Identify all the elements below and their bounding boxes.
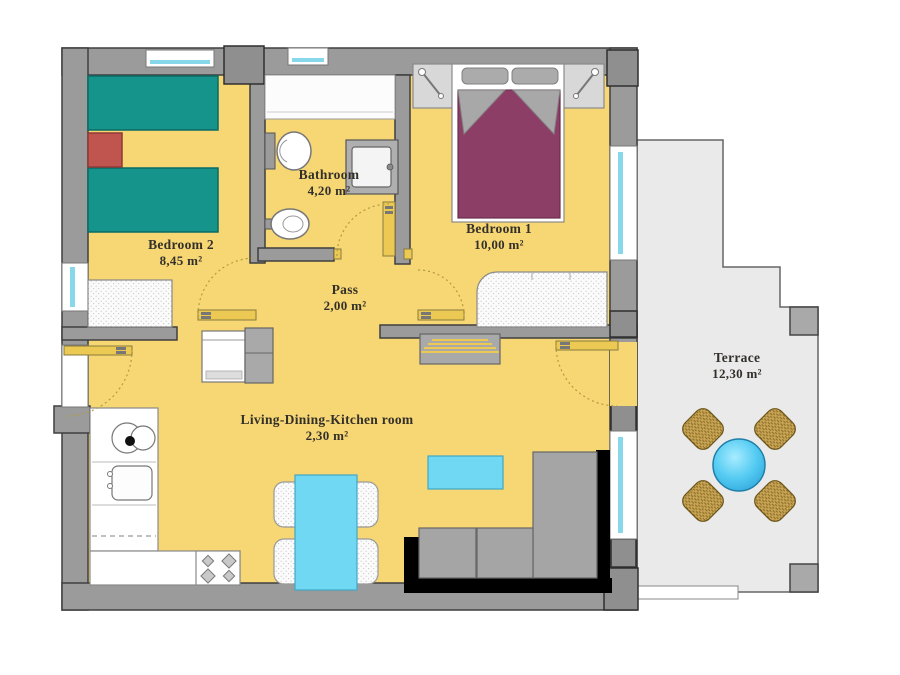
wall-bathroom-bottom: [258, 248, 334, 261]
lamp-shade: [439, 94, 444, 99]
terrace-column: [790, 564, 818, 592]
coffee-table: [428, 456, 503, 489]
room-name: Living-Dining-Kitchen room: [241, 412, 414, 428]
window: [610, 431, 637, 539]
sink-tap: [108, 484, 113, 489]
window-glazing: [618, 152, 623, 254]
door-stop: [404, 249, 412, 259]
red-nightstand: [88, 133, 122, 167]
bathroom-door-leaf: [383, 202, 395, 256]
label-living: Living-Dining-Kitchen room 2,30 m²: [241, 412, 414, 444]
terrace-door-opening: [610, 342, 637, 406]
room-area: 2,30 m²: [241, 428, 414, 444]
dining-table: [295, 475, 357, 590]
column: [607, 50, 638, 86]
washbasin-tap: [387, 164, 393, 170]
room-area: 8,45 m²: [148, 253, 214, 269]
door-handle: [560, 346, 570, 349]
room-area: 12,30 m²: [712, 366, 762, 382]
label-bedroom1: Bedroom 1 10,00 m²: [466, 221, 532, 253]
wardrobe: [88, 280, 172, 327]
terrace-step: [638, 586, 738, 599]
kitchen-sink: [112, 466, 152, 500]
sofa-chaise: [533, 452, 597, 578]
sofa-cushion: [477, 528, 533, 578]
toilet-tank: [265, 133, 275, 169]
door-handle: [385, 211, 393, 214]
lamp-shade: [574, 94, 579, 99]
room-area: 10,00 m²: [466, 237, 532, 253]
room-name: Pass: [324, 282, 367, 298]
toilet-bowl: [277, 132, 311, 170]
wall-bedroom2-bathroom: [250, 75, 265, 263]
room-name: Bedroom 1: [466, 221, 532, 237]
twin-bed: [88, 76, 218, 130]
sink-tap: [108, 472, 113, 477]
washer-base: [206, 371, 242, 379]
label-terrace: Terrace 12,30 m²: [712, 350, 762, 382]
stove: [196, 551, 240, 585]
terrace-round-table: [713, 439, 765, 491]
door-handle: [421, 312, 431, 315]
door-handle: [201, 312, 211, 315]
room-name: Terrace: [712, 350, 762, 366]
pillow: [462, 68, 508, 84]
floor-plan-drawing: [0, 0, 900, 675]
window: [146, 50, 214, 67]
window: [610, 146, 637, 260]
door-handle: [116, 347, 126, 350]
door-handle: [201, 316, 211, 319]
column: [611, 405, 636, 433]
label-bathroom: Bathroom 4,20 m²: [299, 167, 360, 199]
column: [611, 539, 636, 567]
room-area: 4,20 m²: [299, 183, 360, 199]
pillow: [512, 68, 558, 84]
terrace-column: [790, 307, 818, 335]
lamp-base: [592, 69, 599, 76]
room-name: Bedroom 2: [148, 237, 214, 253]
window: [288, 48, 328, 65]
door-handle: [116, 351, 126, 354]
window-glazing: [70, 267, 75, 307]
lamp-base: [419, 69, 426, 76]
label-pass: Pass 2,00 m²: [324, 282, 367, 314]
room-name: Bathroom: [299, 167, 360, 183]
wall-pier-kitchen: [54, 406, 90, 433]
wardrobe: [477, 272, 607, 327]
door-handle: [385, 206, 393, 209]
sofa-frame: [404, 578, 612, 593]
floor-plan: Bedroom 2 8,45 m² Bathroom 4,20 m² Bedro…: [0, 0, 900, 675]
sofa-cushion: [419, 528, 476, 578]
door-handle: [421, 316, 431, 319]
room-area: 2,00 m²: [324, 298, 367, 314]
hob-circle: [131, 426, 155, 450]
column: [610, 311, 637, 337]
column: [224, 46, 264, 84]
wall-bedroom2-bottom: [62, 327, 177, 340]
sofa-frame: [596, 450, 610, 593]
twin-bed: [88, 168, 218, 232]
door-handle: [560, 342, 570, 345]
window-glazing: [618, 437, 623, 533]
window-glazing: [150, 60, 210, 64]
utility-cabinet: [245, 328, 273, 383]
label-bedroom2: Bedroom 2 8,45 m²: [148, 237, 214, 269]
hob-dot: [125, 436, 135, 446]
window-glazing: [292, 58, 324, 62]
